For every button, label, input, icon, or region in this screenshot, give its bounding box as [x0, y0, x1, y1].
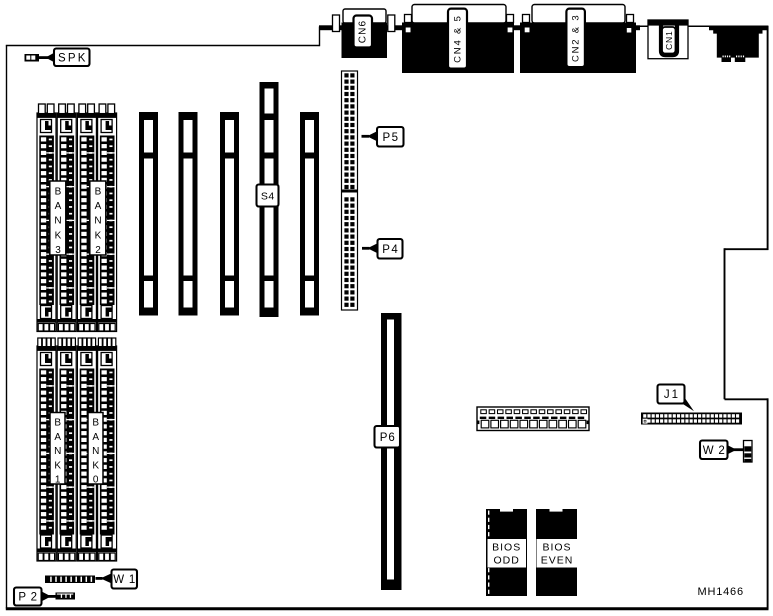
svg-text:CN6: CN6: [357, 20, 368, 44]
svg-text:W 2: W 2: [703, 445, 726, 457]
svg-text:K: K: [92, 460, 99, 471]
svg-text:CN4 & 5: CN4 & 5: [452, 14, 463, 63]
svg-text:A: A: [55, 201, 62, 212]
svg-text:SPK: SPK: [58, 52, 88, 64]
svg-text:K: K: [95, 230, 102, 241]
svg-text:CN1: CN1: [664, 30, 674, 49]
svg-text:W 1: W 1: [113, 574, 136, 586]
svg-text:3: 3: [55, 245, 61, 256]
svg-text:EVEN: EVEN: [541, 555, 574, 567]
svg-text:CN2 & 3: CN2 & 3: [570, 14, 581, 63]
svg-text:P 2: P 2: [18, 592, 37, 604]
svg-text:J1: J1: [664, 389, 680, 401]
svg-text:N: N: [54, 216, 61, 227]
svg-text:P5: P5: [382, 132, 399, 144]
svg-text:MH1466: MH1466: [698, 586, 744, 598]
svg-text:B: B: [92, 418, 99, 429]
svg-text:N: N: [94, 216, 101, 227]
svg-text:B: B: [95, 187, 102, 198]
svg-text:K: K: [54, 460, 61, 471]
svg-text:A: A: [92, 432, 99, 443]
svg-text:1: 1: [55, 475, 61, 486]
svg-text:K: K: [55, 230, 62, 241]
svg-text:B: B: [55, 187, 62, 198]
svg-text:BIOS: BIOS: [542, 542, 571, 554]
svg-text:ODD: ODD: [494, 555, 520, 567]
svg-text:B: B: [54, 418, 61, 429]
svg-text:N: N: [92, 446, 99, 457]
svg-text:A: A: [95, 201, 102, 212]
svg-text:2: 2: [95, 245, 101, 256]
svg-text:BIOS: BIOS: [492, 542, 521, 554]
svg-text:N: N: [54, 446, 61, 457]
svg-text:0: 0: [93, 475, 99, 486]
svg-text:S4: S4: [261, 190, 275, 202]
svg-text:P6: P6: [380, 432, 396, 444]
svg-text:A: A: [54, 432, 61, 443]
svg-text:P4: P4: [382, 244, 399, 256]
